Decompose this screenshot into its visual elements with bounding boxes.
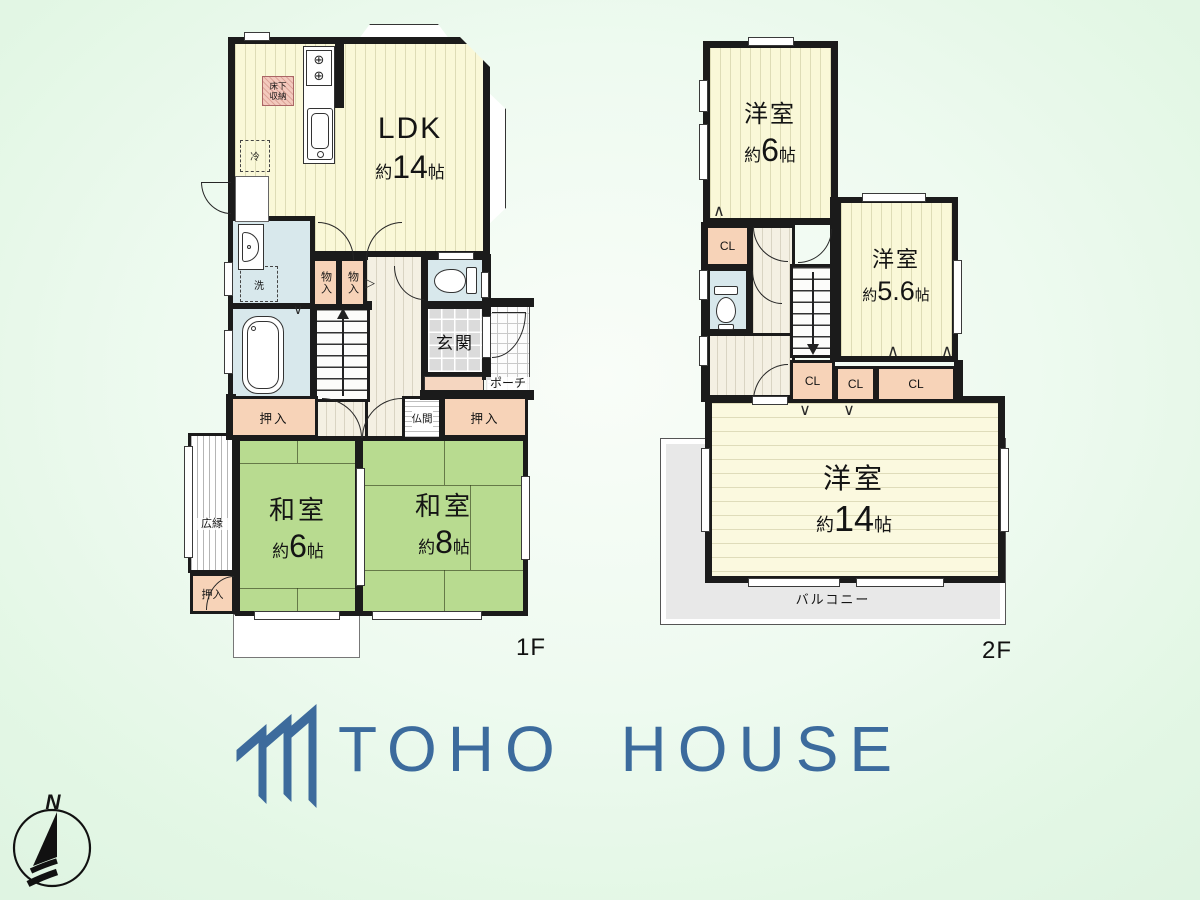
closet-cl: CL [876,366,956,402]
area-value: 14 [834,498,874,539]
stairs-down-arrow [807,344,819,355]
area-unit: 帖 [779,146,796,165]
window [862,193,926,202]
balcony-label: バルコニー [763,593,903,608]
yoshitsu-5-6-label: 洋室 約5.6帖 [836,248,956,306]
area-about: 約 [375,163,392,182]
compass-icon [6,795,106,900]
door-swing-mark: ∧ [708,204,730,220]
area-about: 約 [418,538,435,557]
window [372,611,482,620]
cl-label: CL [805,374,820,388]
kitchen-sink-icon [307,108,333,160]
area-unit: 帖 [915,287,930,304]
burner-icon: ⊕ [314,68,325,84]
area-value: 14 [392,149,428,185]
oshiire-label: 押入 [470,408,499,427]
closet-cl: CL [790,360,835,402]
cl-label: CL [720,239,735,253]
window [1000,448,1009,532]
stairs-direction-line [812,272,814,346]
porch-label: ポーチ [486,377,530,390]
logo-text: TOHO HOUSE [338,712,903,786]
front-door-opening [482,316,491,358]
oshiire-label: 押入 [259,408,288,427]
burner-icon: ⊕ [314,52,325,68]
ldk-label: LDK 約14帖 [345,112,475,185]
window [699,270,708,300]
wall-segment [335,44,344,108]
floorplan-flyer: ⊕ ⊕ 床下収納 冷 洗 ∨ [0,0,1200,900]
stove-icon: ⊕ ⊕ [306,50,332,86]
door-arc [798,229,832,263]
monoire-label: 物入 [345,271,361,295]
area-about: 約 [272,542,289,561]
butsuma-label: 仏間 [412,410,433,427]
window [244,32,270,41]
area-about: 約 [816,515,834,535]
sliding-door [356,468,365,586]
bathtub-icon [242,316,284,394]
window [224,262,233,296]
hiroen-label: 広縁 [194,518,230,530]
area-unit: 帖 [874,515,892,535]
room-name: 洋室 [788,463,920,494]
room-name: 和室 [238,496,358,525]
closet-oshiire: 押入 [442,396,528,438]
window [748,37,794,46]
closet-cl: CL [835,366,876,402]
tatami-line [365,485,523,486]
area-value: 8 [435,524,453,560]
window [224,330,233,374]
door-recess [235,176,269,222]
window [699,124,708,180]
stairs-direction-line [342,318,344,396]
area-value: 5.6 [877,276,915,306]
yoshitsu-6-label: 洋室 約6帖 [706,102,834,169]
window [953,260,962,334]
floor-label-1f: 1F [516,634,560,662]
monoire-label: 物入 [318,271,334,295]
washitsu-6-label: 和室 約6帖 [238,496,358,565]
room-area: 約5.6帖 [836,276,956,306]
logo-house-icon [228,696,330,814]
room-name: 和室 [382,492,506,521]
area-value: 6 [289,528,307,564]
yoshitsu-14-label: 洋室 約14帖 [788,463,920,540]
washbasin-icon [238,224,264,270]
room-hiroen [188,433,235,573]
door-swing-mark: ∧ [882,344,904,360]
window [699,80,708,112]
room-name: 洋室 [836,248,956,273]
room-name: 洋室 [706,102,834,129]
door-swing-mark: ∨ [288,303,308,316]
window [856,578,944,587]
toilet-icon [712,286,742,332]
underfloor-storage-box: 床下収納 [262,76,294,106]
room-area: 約6帖 [706,133,834,169]
door-opening [752,396,788,405]
laundry-label: 洗 [254,277,264,292]
window [748,578,840,587]
closet-monoire: 物入 [312,258,339,307]
tatami-line [444,441,445,485]
door-swing-mark: ∨ [794,403,816,419]
fridge-box: 冷 [240,140,270,172]
underfloor-storage-label: 床下収納 [269,81,288,101]
room-area: 約14帖 [345,150,475,186]
room-area: 約8帖 [382,525,506,561]
door-slide-mark: ▷ [362,276,378,289]
area-unit: 帖 [307,542,324,561]
tatami-line [297,588,298,611]
closet-oshiire: 押入 [230,396,318,438]
door-swing-mark: ∧ [936,344,958,360]
window [701,448,710,532]
washitsu-8-label: 和室 約8帖 [382,492,506,561]
tatami-line [444,570,445,611]
door-arc [201,182,231,214]
room-butsuma: 仏間 [402,396,442,440]
stairs-up-arrow [337,308,349,319]
tatami-line [297,441,298,463]
window [184,446,193,558]
floor-label-2f: 2F [982,637,1026,665]
room-area: 約14帖 [788,499,920,539]
toilet-icon [432,264,480,298]
window [438,252,474,260]
tatami-line [240,463,355,464]
door-swing-mark: ∨ [838,403,860,419]
area-unit: 帖 [453,538,470,557]
room-name: LDK [345,112,475,146]
area-value: 6 [761,132,779,168]
window [481,272,489,298]
cl-label: CL [848,377,863,391]
area-unit: 帖 [428,163,445,182]
area-about: 約 [744,146,761,165]
area-about: 約 [862,287,877,304]
fridge-label: 冷 [250,149,260,163]
deck-step [233,614,360,658]
closet-cl: CL [705,225,750,267]
room-area: 約6帖 [238,529,358,565]
cl-label: CL [908,377,923,391]
laundry-box: 洗 [240,266,278,302]
genkan-label: 玄関 [424,334,486,353]
window [254,611,340,620]
window [521,476,530,560]
window [699,336,708,366]
